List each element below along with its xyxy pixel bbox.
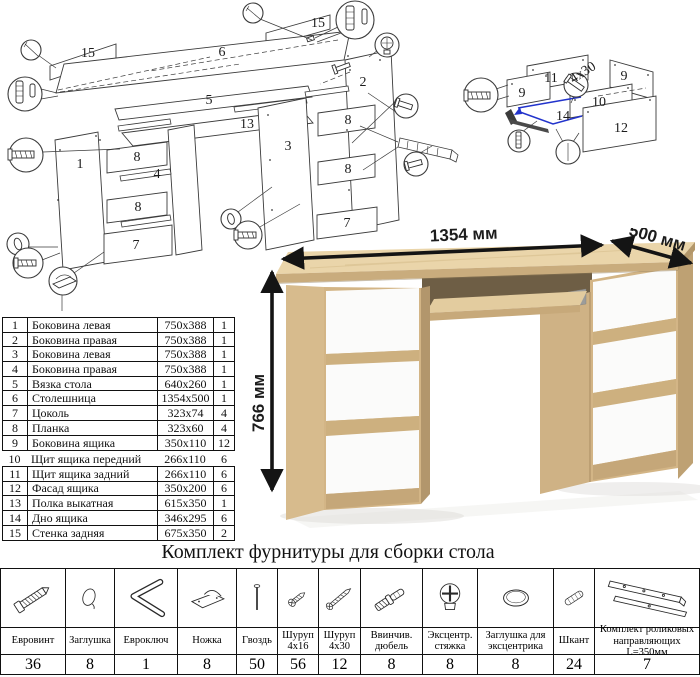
part-label: 12 [614, 121, 628, 136]
part-qty: 6 [214, 511, 234, 526]
hardware-item-name: Шуруп 4x30 [319, 628, 360, 655]
panel-side-inner [168, 125, 202, 255]
parts-table-row: 12Фасад ящика350x2006 [3, 482, 234, 497]
part-qty: 1 [214, 362, 234, 377]
dowel-cap-callout-icon [336, 1, 374, 39]
hardware-item-qty: 8 [66, 655, 114, 674]
hardware-item-qty: 8 [361, 655, 422, 674]
part-qty: 6 [214, 482, 234, 497]
part-qty: 1 [214, 496, 234, 511]
part-size: 350x110 [158, 436, 214, 451]
panel-side-right [345, 50, 399, 230]
part-label: 13 [240, 117, 254, 132]
part-size: 350x200 [158, 482, 214, 497]
nail-callout-icon [21, 40, 41, 60]
hardware-item: Евровинт36 [1, 569, 66, 674]
hardware-item: Заглушка8 [66, 569, 115, 674]
hardware-item-qty: 12 [319, 655, 360, 674]
part-size: 750x388 [158, 362, 214, 377]
parts-table-row: 9Боковина ящика350x11012 [3, 436, 234, 451]
part-qty: 2 [214, 526, 234, 541]
part-number: 1 [3, 318, 28, 333]
hardware-item: Евроключ1 [115, 569, 178, 674]
cam-cap-icon [478, 569, 553, 628]
part-number: 6 [3, 391, 28, 406]
part-name: Цоколь [28, 406, 158, 421]
part-qty: 1 [214, 318, 234, 333]
parts-table-row: 5Вязка стола640x2601 [3, 377, 234, 392]
hardware-item: Эксцентр. стяжка8 [423, 569, 478, 674]
parts-table-row: 8Планка323x604 [3, 421, 234, 436]
parts-table-row: 2Боковина правая750x3881 [3, 333, 234, 348]
part-label: 7 [133, 238, 140, 253]
hexkey-icon [115, 569, 177, 628]
part-qty: 6 [214, 467, 234, 482]
part-label: 4 [154, 167, 161, 182]
part-number: 3 [3, 347, 28, 362]
screw-short-icon [278, 569, 318, 628]
parts-table-lower: 11Щит ящика задний266x110612Фасад ящика3… [2, 466, 235, 541]
part-number: 14 [3, 511, 28, 526]
hardware-item-name: Шкант [554, 628, 594, 655]
parts-table-row: 3Боковина левая750x3881 [3, 347, 234, 362]
part-name: Щит ящика задний [28, 467, 158, 482]
part-size: 1354x500 [158, 391, 214, 406]
hardware-item-qty: 8 [478, 655, 553, 674]
cap-icon [66, 569, 114, 628]
part-number: 9 [3, 436, 28, 451]
part-qty: 1 [214, 377, 234, 392]
part-size: 615x350 [158, 496, 214, 511]
hardware-item-name: Заглушка для эксцентрика [478, 628, 553, 655]
part-number: 8 [3, 421, 28, 436]
part-name: Вязка стола [28, 377, 158, 392]
dowel-screw-icon [361, 569, 422, 628]
part-name: Стенка задняя [28, 526, 158, 541]
hardware-item-name: Эксцентр. стяжка [423, 628, 477, 655]
part-size: 675x350 [158, 526, 214, 541]
part-label: 11 [544, 71, 557, 86]
hardware-kit-title: Комплект фурнитуры для сборки стола [0, 541, 656, 564]
parts-table-row: 15Стенка задняя675x3502 [3, 526, 234, 541]
parts-table-row: 6Столешница1354x5001 [3, 391, 234, 406]
hardware-item-name: Ножка [178, 628, 236, 655]
hardware-item-qty: 36 [1, 655, 65, 674]
hardware-item: Гвоздь50 [237, 569, 278, 674]
hardware-item-qty: 1 [115, 655, 177, 674]
left-side-panel [286, 285, 324, 520]
part-size: 266x110 [158, 467, 214, 482]
hardware-item: Шкант24 [554, 569, 595, 674]
part-size: 750x388 [158, 333, 214, 348]
hardware-item-qty: 8 [423, 655, 477, 674]
hardware-item-name: Шуруп 4x16 [278, 628, 318, 655]
part-name: Столешница [28, 391, 158, 406]
part-label: 6 [219, 45, 226, 60]
part-name: Боковина правая [28, 362, 158, 377]
part-number: 10 [2, 451, 27, 466]
dowel-cap-callout-icon [8, 77, 42, 111]
parts-table-row: 10Щит ящика передний266x1106 [2, 451, 235, 466]
part-name: Полка выкатная [28, 496, 158, 511]
drawer-front [326, 430, 419, 494]
width-dimension-label: 1354 мм [430, 228, 498, 245]
part-label: 8 [345, 162, 352, 177]
parts-table-row: 4Боковина правая750x3881 [3, 362, 234, 377]
hardware-item-qty: 8 [178, 655, 236, 674]
hardware-item: Комплект роликовых направляющих L=350мм7 [595, 569, 699, 674]
hardware-item: Ввинчив. дюбель8 [361, 569, 423, 674]
part-name: Дно ящика [28, 511, 158, 526]
part-number: 7 [3, 406, 28, 421]
parts-table-upper: 1Боковина левая750x38812Боковина правая7… [2, 317, 235, 451]
hardware-item-qty: 50 [237, 655, 277, 674]
part-qty: 12 [214, 436, 234, 451]
nail-icon [237, 569, 277, 628]
part-qty: 6 [213, 451, 235, 466]
part-qty: 1 [214, 391, 234, 406]
part-number: 5 [3, 377, 28, 392]
part-size: 323x60 [158, 421, 214, 436]
hardware-item-name: Евроключ [115, 628, 177, 655]
part-label: 5 [206, 93, 213, 108]
desk-product-photo: 1354 мм 500 мм 766 мм [250, 228, 700, 550]
part-label: 15 [81, 46, 95, 61]
part-number: 13 [3, 496, 28, 511]
parts-list-table: 1Боковина левая750x38812Боковина правая7… [2, 317, 235, 541]
euroscrew-icon [1, 569, 65, 628]
part-label: 15 [311, 16, 325, 31]
part-number: 12 [3, 482, 28, 497]
part-label: 8 [135, 200, 142, 215]
part-size: 750x388 [158, 318, 214, 333]
parts-table-row: 11Щит ящика задний266x1106 [3, 467, 234, 482]
cam-icon [423, 569, 477, 628]
part-name: Щит ящика передний [27, 451, 157, 466]
screw-long-icon [319, 569, 360, 628]
part-label: 2 [360, 75, 367, 90]
hardware-item-name: Ввинчив. дюбель [361, 628, 422, 655]
wood-dowel-icon [554, 569, 594, 628]
part-label: 8 [345, 113, 352, 128]
hardware-item: Шуруп 4x1656 [278, 569, 319, 674]
foot-icon [178, 569, 236, 628]
part-label: 9 [621, 69, 628, 84]
part-name: Планка [28, 421, 158, 436]
part-label: 14 [556, 109, 570, 124]
part-qty: 1 [214, 347, 234, 362]
hardware-item-qty: 56 [278, 655, 318, 674]
part-name: Фасад ящика [28, 482, 158, 497]
part-qty: 1 [214, 333, 234, 348]
rails-icon [595, 569, 699, 628]
part-size: 640x260 [158, 377, 214, 392]
drawer-front [326, 288, 419, 354]
part-label: 9 [519, 86, 526, 101]
part-size: 323x74 [158, 406, 214, 421]
hardware-item-name: Заглушка [66, 628, 114, 655]
hardware-item-qty: 7 [595, 655, 699, 674]
hardware-kit-table: Евровинт36Заглушка8Евроключ1Ножка8Гвоздь… [0, 568, 700, 675]
drawer-front [326, 361, 419, 421]
parts-table-middle-row: 10Щит ящика передний266x1106 [2, 451, 235, 466]
hardware-item-name: Евровинт [1, 628, 65, 655]
part-number: 11 [3, 467, 28, 482]
assembly-instruction-sheet: 15615251331848788711991014124x30 1Бокови… [0, 0, 700, 677]
part-name: Боковина левая [28, 347, 158, 362]
hardware-item-qty: 24 [554, 655, 594, 674]
part-qty: 4 [214, 406, 234, 421]
hardware-item: Заглушка для эксцентрика8 [478, 569, 554, 674]
part-name: Боковина правая [28, 333, 158, 348]
hardware-item-name: Комплект роликовых направляющих L=350мм [595, 628, 699, 655]
part-name: Боковина ящика [28, 436, 158, 451]
left-pedestal [286, 285, 430, 520]
part-number: 2 [3, 333, 28, 348]
part-label: 10 [592, 95, 606, 110]
parts-table-row: 13Полка выкатная615x3501 [3, 496, 234, 511]
part-label: 3 [285, 139, 292, 154]
parts-table-row: 14Дно ящика346x2956 [3, 511, 234, 526]
hardware-item-name: Гвоздь [237, 628, 277, 655]
part-number: 15 [3, 526, 28, 541]
part-label: 8 [134, 150, 141, 165]
hardware-item: Ножка8 [178, 569, 237, 674]
hardware-item: Шуруп 4x3012 [319, 569, 361, 674]
part-number: 4 [3, 362, 28, 377]
center-divider [540, 292, 590, 494]
part-label: 1 [77, 157, 84, 172]
parts-table-row: 7Цоколь323x744 [3, 406, 234, 421]
height-dimension-label: 766 мм [250, 374, 268, 432]
parts-table-row: 1Боковина левая750x3881 [3, 318, 234, 333]
panel-side-left [55, 132, 106, 270]
part-name: Боковина левая [28, 318, 158, 333]
part-size: 346x295 [158, 511, 214, 526]
part-size: 266x110 [157, 451, 213, 466]
part-qty: 4 [214, 421, 234, 436]
part-size: 750x388 [158, 347, 214, 362]
